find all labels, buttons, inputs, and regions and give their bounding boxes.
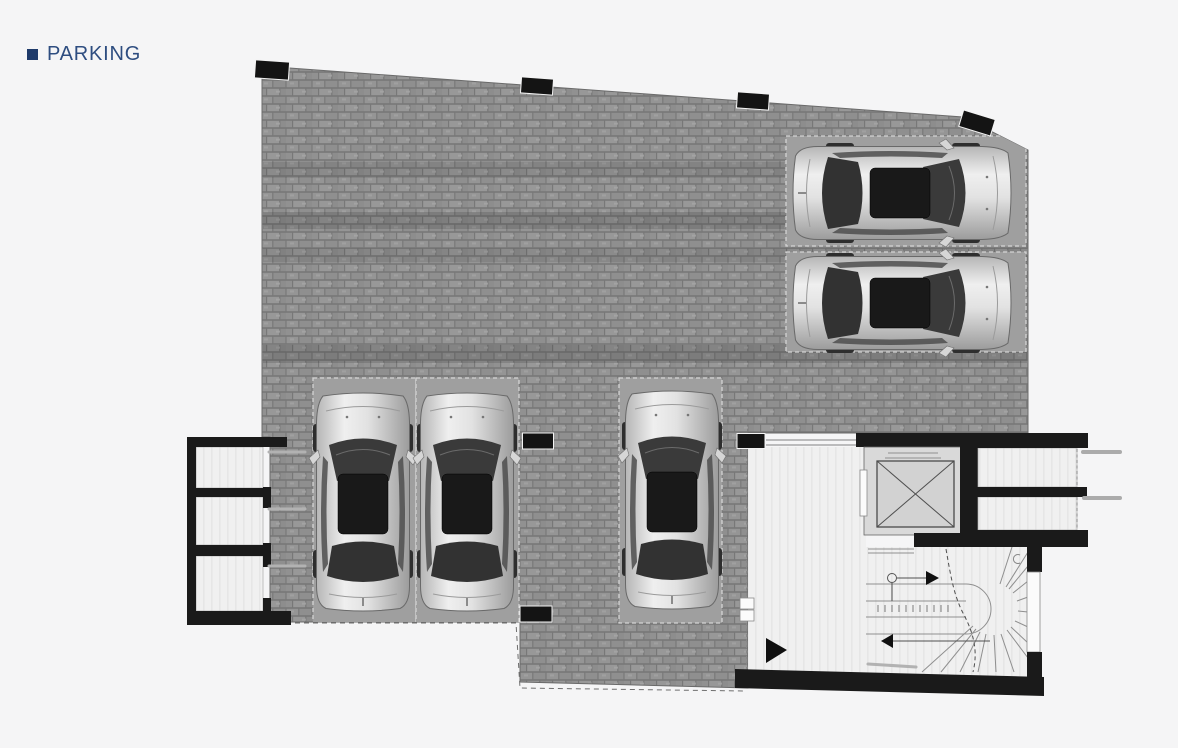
wall-stub bbox=[263, 543, 271, 567]
car-top-view bbox=[309, 393, 417, 611]
entrance-lobby bbox=[748, 447, 866, 676]
wall bbox=[187, 437, 287, 447]
wall bbox=[960, 530, 1088, 547]
car-top-view bbox=[618, 391, 726, 609]
wall-stub bbox=[1027, 547, 1042, 572]
storage-room bbox=[196, 497, 263, 545]
stair-side-door bbox=[1027, 572, 1040, 652]
partition-wall bbox=[975, 487, 1087, 497]
storage-room bbox=[196, 556, 263, 611]
wall bbox=[960, 433, 1088, 448]
staircase-room bbox=[866, 547, 1028, 676]
car-top-view bbox=[793, 249, 1011, 357]
page: { "page": { "background": "#f5f5f6", "he… bbox=[0, 0, 1178, 748]
wall bbox=[187, 611, 291, 625]
entrance-door-leaf bbox=[740, 598, 754, 609]
structural-column bbox=[523, 433, 554, 449]
wall bbox=[187, 437, 196, 625]
structural-column bbox=[736, 92, 769, 110]
wall-stub bbox=[263, 487, 271, 508]
structural-column bbox=[520, 606, 552, 622]
storage-room-right bbox=[978, 497, 1077, 530]
page-title: PARKING bbox=[47, 43, 141, 66]
car-top-view bbox=[793, 139, 1011, 247]
title-bullet-icon bbox=[27, 49, 38, 60]
structural-column bbox=[254, 60, 289, 80]
rooms-right bbox=[960, 433, 1120, 547]
page-header: PARKING bbox=[27, 43, 141, 66]
car-top-view bbox=[413, 393, 521, 611]
partition-wall bbox=[196, 545, 265, 556]
entrance-door-leaf bbox=[740, 610, 754, 621]
structural-column bbox=[520, 77, 553, 95]
structural-column bbox=[737, 434, 765, 449]
parking-floor-plan bbox=[0, 0, 1178, 748]
storage-room bbox=[196, 447, 263, 488]
wall-stub bbox=[263, 598, 271, 612]
wall-stub bbox=[1027, 652, 1042, 678]
partition-wall bbox=[196, 488, 265, 497]
storage-room-right bbox=[978, 448, 1077, 487]
elevator-door bbox=[860, 470, 867, 516]
